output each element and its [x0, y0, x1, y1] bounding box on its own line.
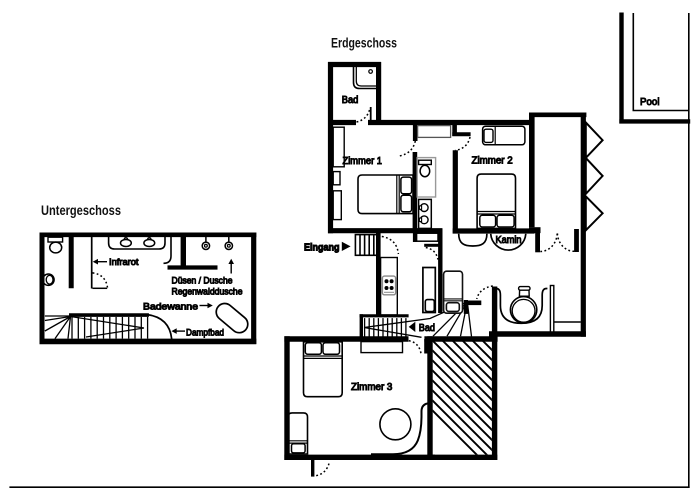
svg-text:Düsen / Dusche: Düsen / Dusche [172, 275, 233, 286]
svg-text:Dampfbad: Dampfbad [186, 328, 224, 339]
svg-text:Kamin: Kamin [496, 235, 522, 246]
svg-text:Bad: Bad [342, 95, 359, 106]
svg-text:Zimmer 1: Zimmer 1 [343, 156, 383, 167]
svg-text:Untergeschoss: Untergeschoss [41, 203, 121, 218]
svg-text:Erdgeschoss: Erdgeschoss [331, 36, 397, 51]
svg-text:Zimmer 2: Zimmer 2 [472, 156, 514, 167]
svg-text:Bad: Bad [419, 323, 435, 334]
svg-text:Eingang: Eingang [304, 242, 340, 253]
svg-text:Badewanne: Badewanne [143, 301, 198, 312]
svg-text:Infrarot: Infrarot [109, 257, 139, 268]
svg-text:Pool: Pool [640, 96, 660, 108]
svg-text:Regenwalddusche: Regenwalddusche [172, 287, 243, 298]
svg-text:Zimmer 3: Zimmer 3 [351, 382, 393, 393]
